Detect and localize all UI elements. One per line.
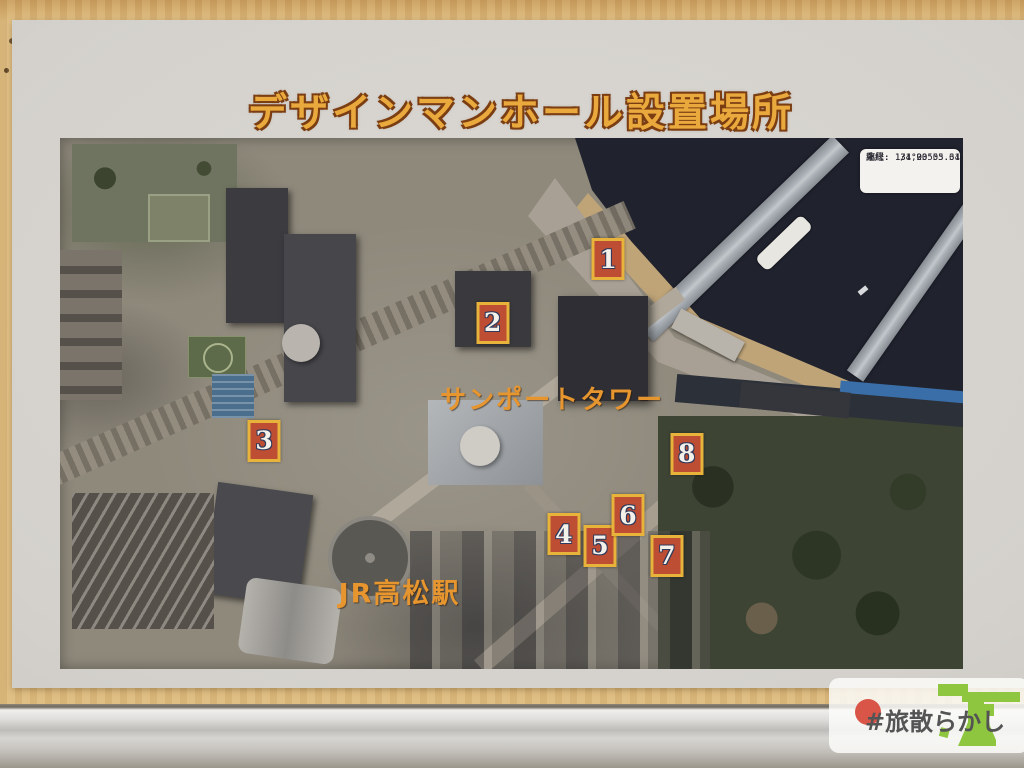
map-marker-4: 4 [547,513,580,555]
map-marker-3: 3 [248,420,281,462]
map-marker-6: 6 [611,494,644,536]
highrise-building [284,234,356,402]
rooftop-heliport [188,336,246,378]
scale-text: 縮尺: 1/1,905 [866,152,933,165]
wood-knot [4,68,9,73]
watermark-text: #旅散らかし [865,702,1005,737]
poster-title: デザインマンホール設置場所 [12,82,1024,138]
photo-scene: デザインマンホール設置場所 [0,0,1024,768]
dome-plaza [460,426,500,466]
label-jr-takamatsu-station: JR高松駅 [339,571,461,610]
watermark-card: #旅散らかし [829,678,1024,753]
parking-lot [72,493,214,629]
map-marker-8: 8 [670,433,703,475]
poster: デザインマンホール設置場所 [12,20,1024,688]
glass-atrium-roof [212,374,254,418]
symbol-tower-shadow [226,188,288,323]
map-marker-2: 2 [476,302,509,344]
coordinates-info-box: 東経: 134°03'03.64"北緯: 34°20'55.31"縮尺: 1/1… [860,149,960,193]
west-city-blocks [60,250,122,400]
map-marker-7: 7 [650,535,683,577]
aerial-map: 東経: 134°03'03.64"北緯: 34°20'55.31"縮尺: 1/1… [60,138,963,669]
park-square [148,194,210,242]
round-building [282,324,320,362]
map-marker-1: 1 [592,238,625,280]
station-arched-roof [237,577,343,666]
label-sunport-tower: サンポートタワー [440,380,664,417]
